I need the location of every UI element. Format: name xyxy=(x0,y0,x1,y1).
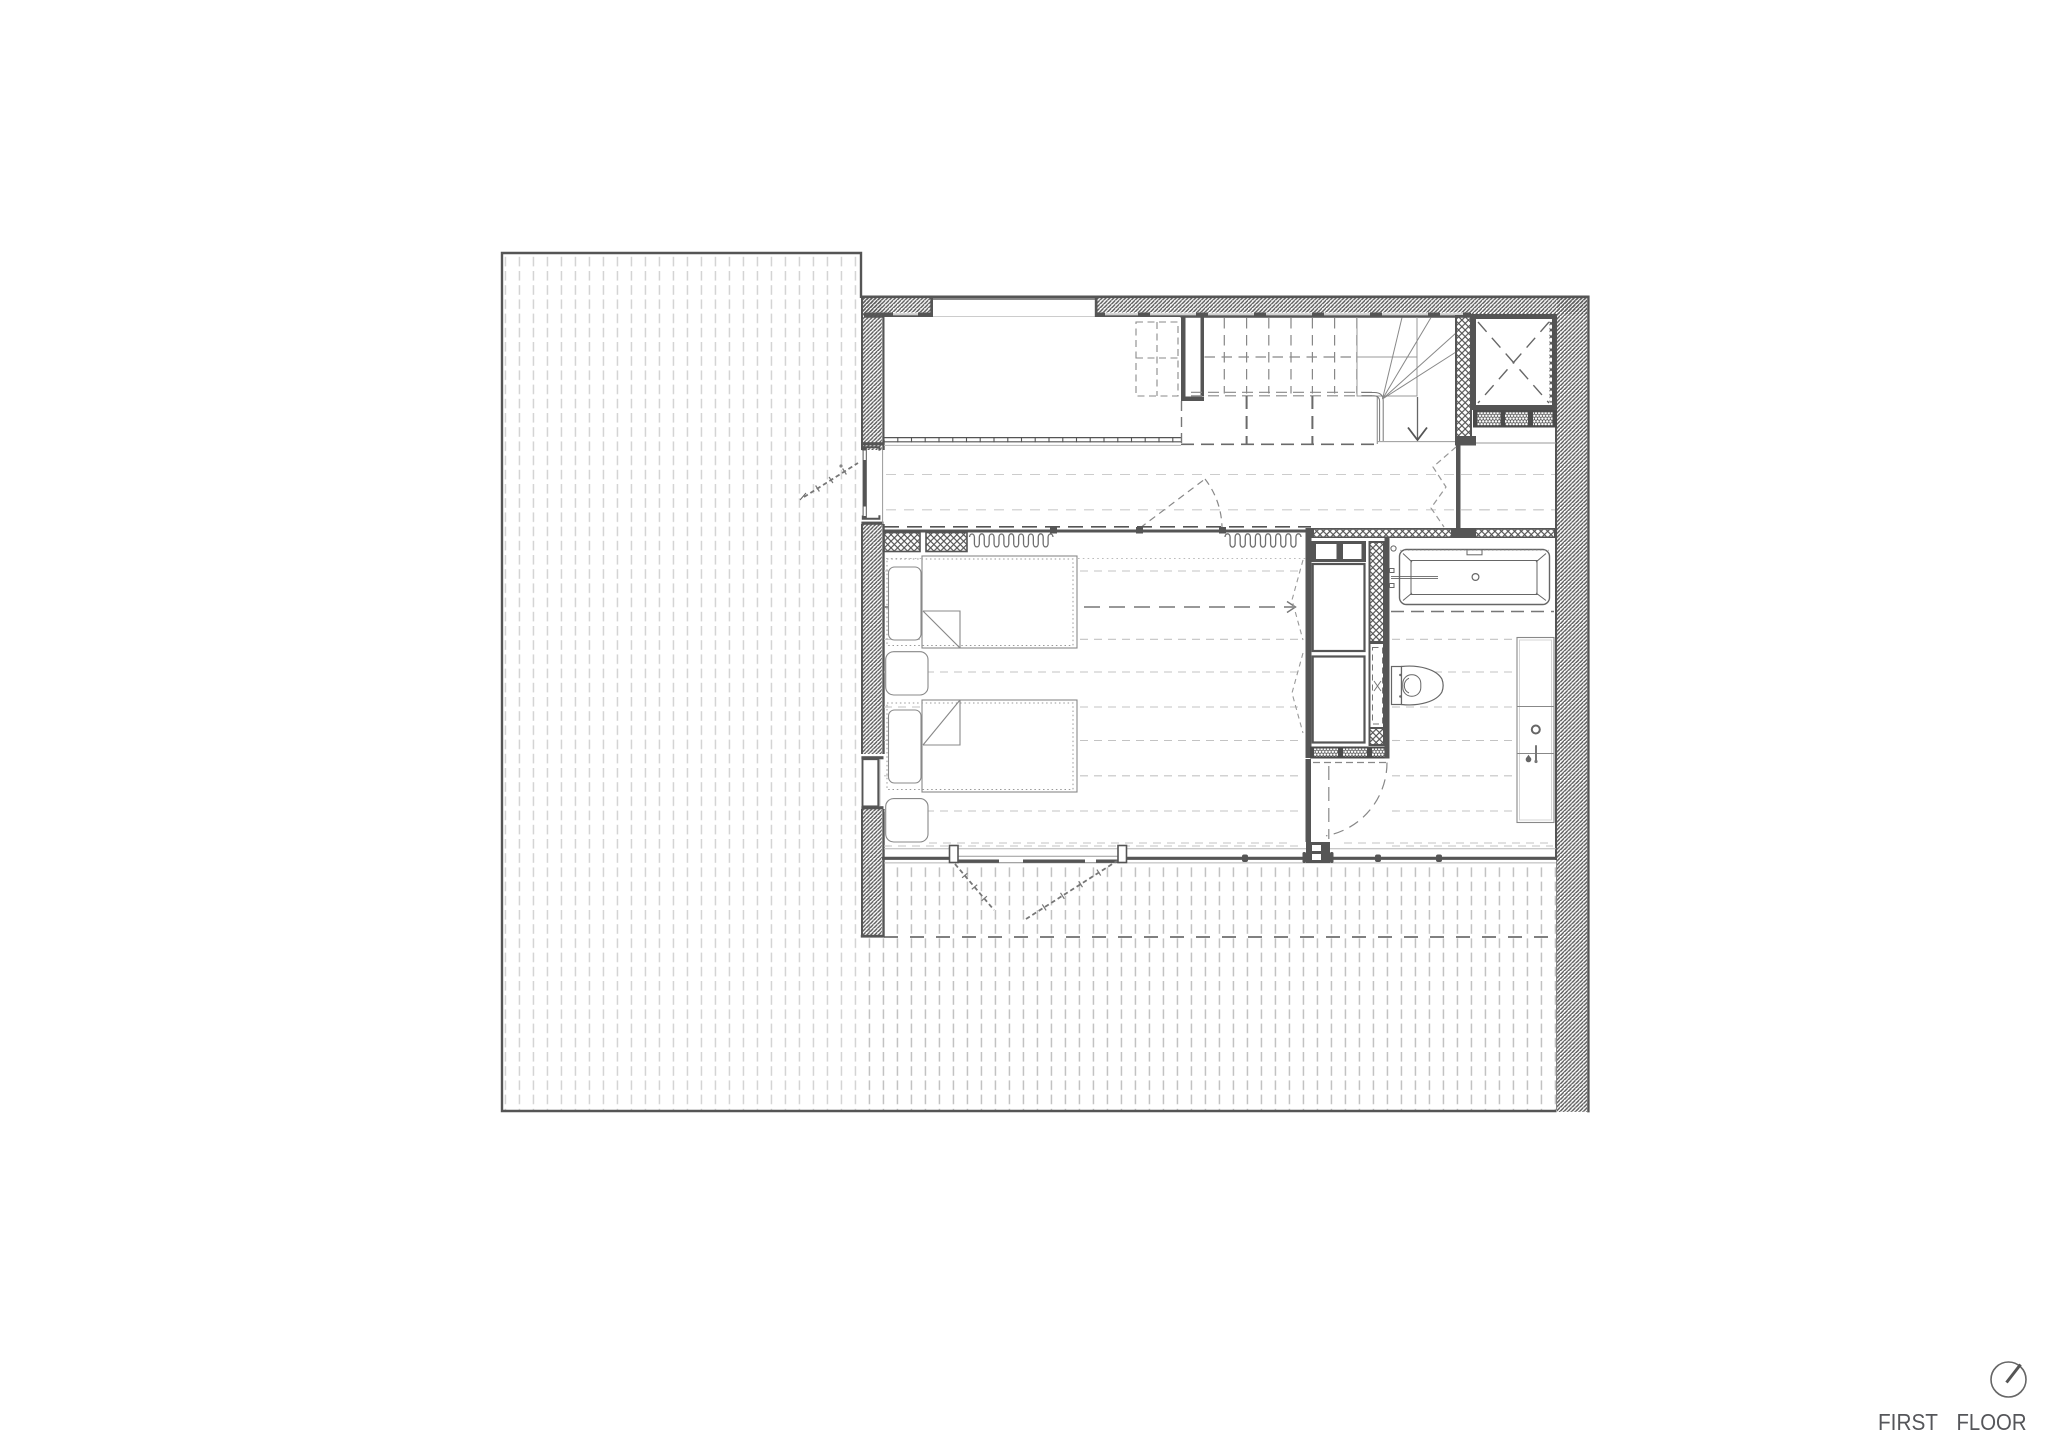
svg-text:FIRST: FIRST xyxy=(1878,1409,1938,1435)
svg-text:FLOOR: FLOOR xyxy=(1957,1409,2027,1435)
